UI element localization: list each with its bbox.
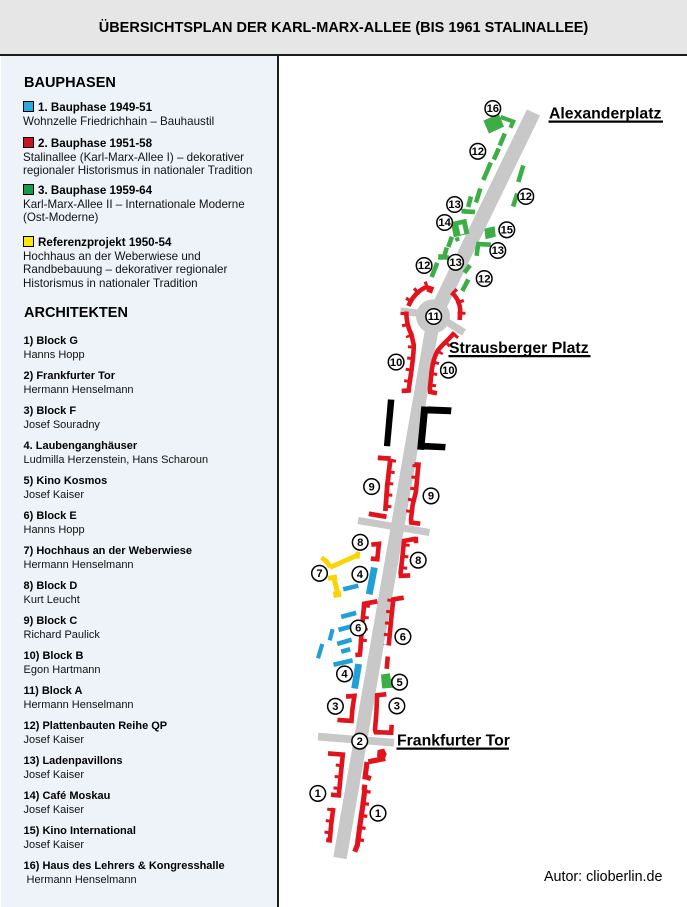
svg-text:Autor: clioberlin.de: Autor: clioberlin.de [544,869,662,885]
svg-text:8: 8 [357,537,363,549]
svg-text:Strausberger Platz: Strausberger Platz [449,340,589,357]
svg-text:9: 9 [428,491,434,503]
svg-text:Frankfurter Tor: Frankfurter Tor [397,732,510,749]
svg-text:14: 14 [438,217,451,229]
svg-text:4: 4 [357,569,364,581]
svg-text:5: 5 [396,677,402,689]
svg-text:13: 13 [449,257,461,269]
svg-text:8: 8 [415,555,421,567]
svg-text:1: 1 [315,788,321,800]
svg-text:6: 6 [400,631,406,643]
svg-text:3: 3 [394,701,400,713]
svg-text:15: 15 [501,225,513,237]
svg-text:11: 11 [428,311,440,323]
svg-text:4: 4 [341,669,348,681]
svg-text:12: 12 [418,260,430,272]
svg-text:12: 12 [478,273,490,285]
svg-text:9: 9 [368,481,374,493]
svg-text:10: 10 [442,365,454,377]
svg-text:Alexanderplatz: Alexanderplatz [549,105,661,122]
svg-text:1: 1 [375,808,381,820]
svg-text:12: 12 [472,146,484,158]
svg-text:16: 16 [487,103,499,115]
svg-text:13: 13 [492,245,504,257]
svg-text:2: 2 [357,736,363,748]
svg-text:10: 10 [390,357,402,369]
svg-text:13: 13 [448,199,460,211]
svg-text:3: 3 [332,701,338,713]
svg-text:7: 7 [316,568,322,580]
svg-text:6: 6 [355,623,361,635]
svg-text:12: 12 [520,191,532,203]
